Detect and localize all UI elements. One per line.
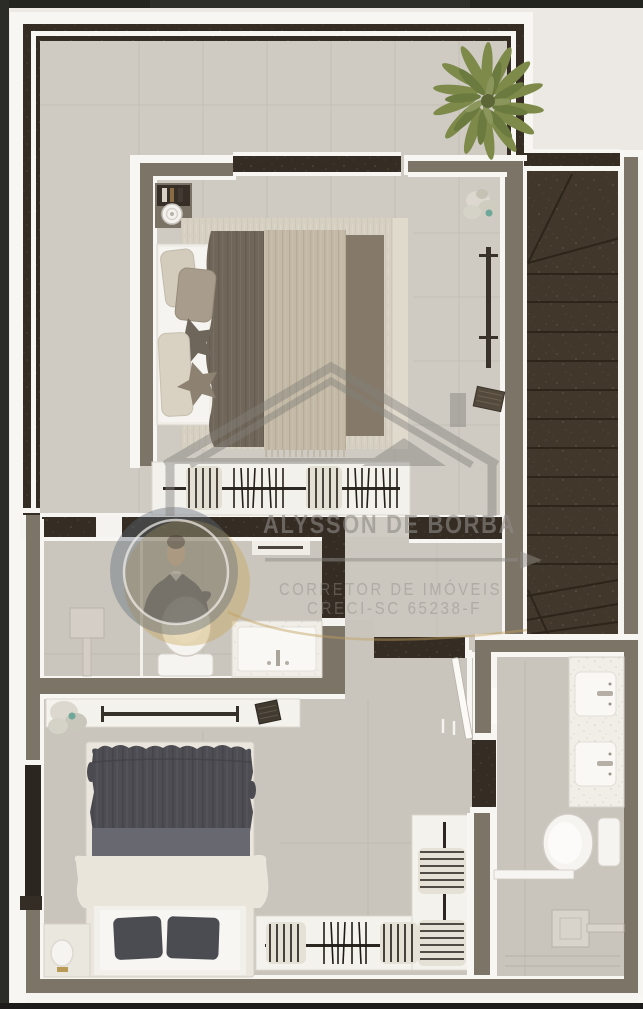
svg-text:CORRETOR DE IMÓVEIS: CORRETOR DE IMÓVEIS	[279, 578, 502, 599]
svg-text:ALYSSON DE BORBA: ALYSSON DE BORBA	[263, 509, 516, 539]
svg-text:CRECI-SC 65238-F: CRECI-SC 65238-F	[307, 598, 482, 618]
